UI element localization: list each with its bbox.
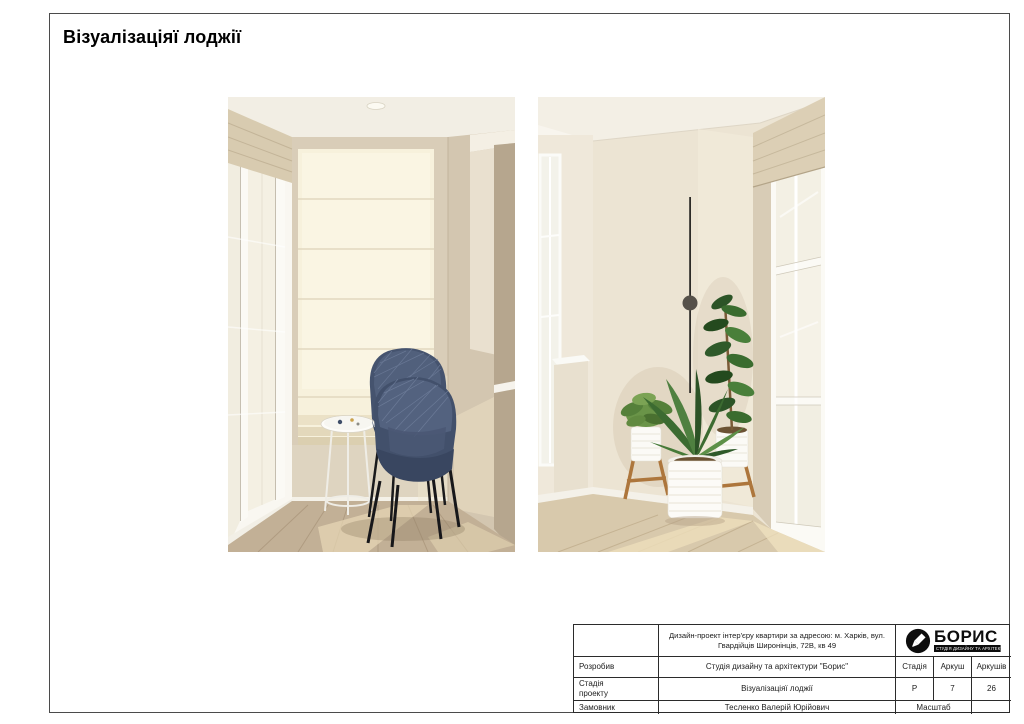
logo-text: БОРИС СТУДІЯ ДИЗАЙНУ ТА АРХІТЕКТУРИ <box>934 629 1002 652</box>
client-value: Тесленко Валерій Юрійович <box>659 701 896 714</box>
sheet-header: Аркуш <box>934 657 972 678</box>
page-title: Візуалізаціяї лоджії <box>63 27 241 48</box>
logo-name: БОРИС <box>934 629 998 645</box>
render-loggia-plants <box>538 97 825 552</box>
loggia-plants-illustration <box>538 97 825 552</box>
marker-in-circle-icon <box>905 628 931 654</box>
logo-tagline: СТУДІЯ ДИЗАЙНУ ТА АРХІТЕКТУРИ <box>934 645 1001 652</box>
loggia-chairs-illustration <box>228 97 515 552</box>
stage-value: Візуалізаціяї лоджії <box>659 678 896 701</box>
right-wall <box>448 130 515 552</box>
stadia-value: Р <box>896 678 934 701</box>
stadia-header: Стадія <box>896 657 934 678</box>
stage-label: Стадія проекту <box>574 678 659 701</box>
scale-label: Масштаб <box>896 701 972 714</box>
project-address-cell: Дизайн-проект інтер'єру квартири за адре… <box>659 625 896 657</box>
ceiling-spotlight <box>367 103 385 110</box>
titleblock-empty-cell <box>574 625 659 657</box>
developer-value: Студія дизайну та архітектури "Борис" <box>659 657 896 678</box>
left-window-wall <box>228 109 292 552</box>
sheets-value: 26 <box>972 678 1011 701</box>
client-label: Замовник <box>574 701 659 714</box>
right-window-wall <box>753 97 825 552</box>
title-block-table: Дизайн-проект інтер'єру квартири за адре… <box>573 624 1010 713</box>
sheet-value: 7 <box>934 678 972 701</box>
developer-label: Розробив <box>574 657 659 678</box>
scale-value <box>972 701 1011 714</box>
studio-logo: БОРИС СТУДІЯ ДИЗАЙНУ ТА АРХІТЕКТУРИ <box>896 625 1011 657</box>
render-loggia-chairs <box>228 97 515 552</box>
sheets-header: Аркушів <box>972 657 1011 678</box>
sheet-border-frame <box>49 13 1010 713</box>
drawing-sheet: Візуалізаціяї лоджії <box>0 0 1024 724</box>
